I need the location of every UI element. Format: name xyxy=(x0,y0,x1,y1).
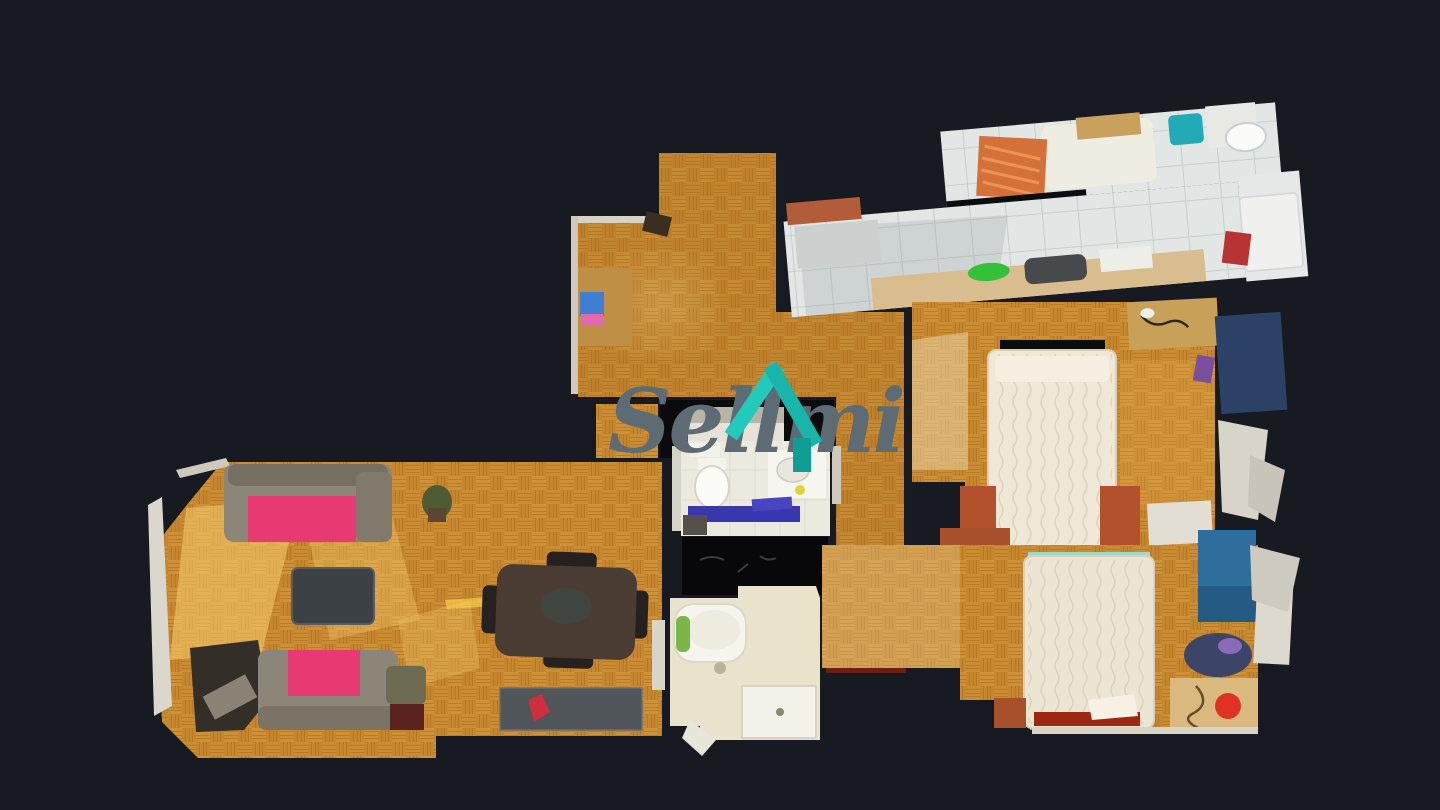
watermark-text: Sellmi xyxy=(608,369,903,473)
room-bedroom-1[interactable] xyxy=(912,298,1287,548)
bedroom2-light-patch xyxy=(822,545,960,668)
hall-wall-left xyxy=(571,216,578,394)
fridge xyxy=(1239,193,1303,272)
nightstand-right xyxy=(1100,486,1140,548)
bathroom2-door-left xyxy=(652,620,665,690)
desk-1 xyxy=(1127,298,1219,351)
blue-rug-shade xyxy=(1198,586,1256,622)
sofa-1 xyxy=(224,464,392,542)
teal-laundry-basket xyxy=(1168,113,1204,146)
dark-sink xyxy=(1024,253,1088,284)
terracotta-strip xyxy=(940,528,1010,546)
floorplan-viewer[interactable]: Sellmi xyxy=(0,0,1440,810)
navy-wardrobe xyxy=(1215,312,1288,414)
left-counter xyxy=(794,219,881,268)
room-living-dining[interactable] xyxy=(148,458,662,758)
maroon-wall-edge xyxy=(826,668,906,673)
nightstand-2 xyxy=(994,698,1026,728)
bedroom2-bottom-wall xyxy=(1032,727,1258,734)
desk-2 xyxy=(1170,678,1258,730)
bathtub xyxy=(674,604,746,662)
watermark-logo: Sellmi xyxy=(608,369,903,473)
red-stool xyxy=(1215,693,1241,719)
clothes-pile xyxy=(1184,633,1252,677)
olive-cushion xyxy=(386,666,426,704)
washing-machine xyxy=(683,515,707,535)
floor-drain xyxy=(714,662,726,674)
clothes-purple xyxy=(1218,638,1242,654)
double-bed-1 xyxy=(988,340,1116,548)
yellow-soap xyxy=(795,485,805,495)
shower xyxy=(742,686,816,738)
bedroom1-light-patch xyxy=(912,332,968,470)
hall-pink-cloth xyxy=(581,314,603,326)
plant-pot xyxy=(428,508,446,522)
red-cloth xyxy=(1222,231,1252,266)
sofa-2 xyxy=(258,650,398,730)
double-bed-2 xyxy=(1024,552,1154,728)
coffee-table xyxy=(292,568,374,624)
sideboard xyxy=(500,688,642,730)
dark-red-box xyxy=(390,704,424,730)
hall-blue-box xyxy=(580,292,604,316)
floorplan-canvas[interactable]: Sellmi xyxy=(0,0,1440,810)
white-cutting-board xyxy=(1099,246,1153,272)
